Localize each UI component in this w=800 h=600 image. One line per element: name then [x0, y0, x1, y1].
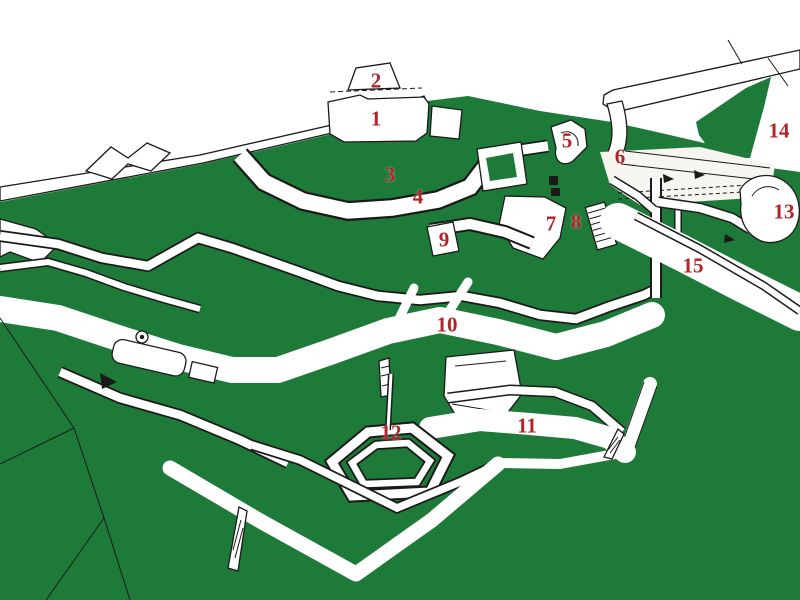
dark-block-1	[549, 176, 558, 185]
citadel-block-1	[328, 95, 429, 142]
tile-9	[427, 222, 459, 256]
fortress-map-drawing	[0, 0, 800, 600]
fortress-map: 123456789101112131415	[0, 0, 800, 600]
citadel-annex	[430, 106, 462, 139]
dark-block-2	[551, 188, 560, 196]
courtyard-inner	[486, 153, 517, 181]
well-dot	[140, 335, 144, 339]
